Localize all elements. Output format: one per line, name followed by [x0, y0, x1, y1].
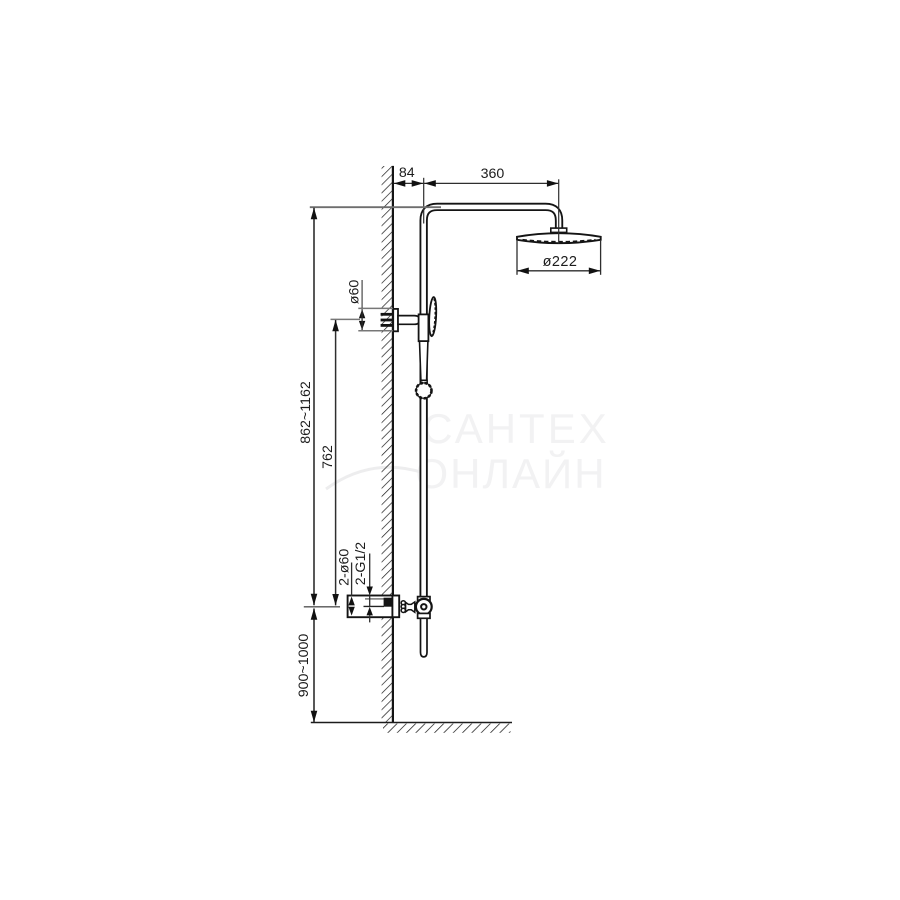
svg-text:360: 360	[481, 166, 505, 182]
svg-text:САНТЕХ: САНТЕХ	[422, 405, 609, 452]
svg-text:ø60: ø60	[346, 280, 362, 305]
svg-text:2-G1/2: 2-G1/2	[353, 542, 369, 585]
svg-text:84: 84	[399, 165, 415, 181]
svg-text:900~1000: 900~1000	[296, 634, 312, 698]
svg-text:ОНЛАЙН: ОНЛАЙН	[415, 449, 606, 497]
svg-text:762: 762	[320, 445, 336, 469]
svg-text:2-ø60: 2-ø60	[337, 549, 353, 586]
svg-text:862~1162: 862~1162	[298, 381, 314, 444]
svg-text:ø222: ø222	[543, 254, 578, 270]
